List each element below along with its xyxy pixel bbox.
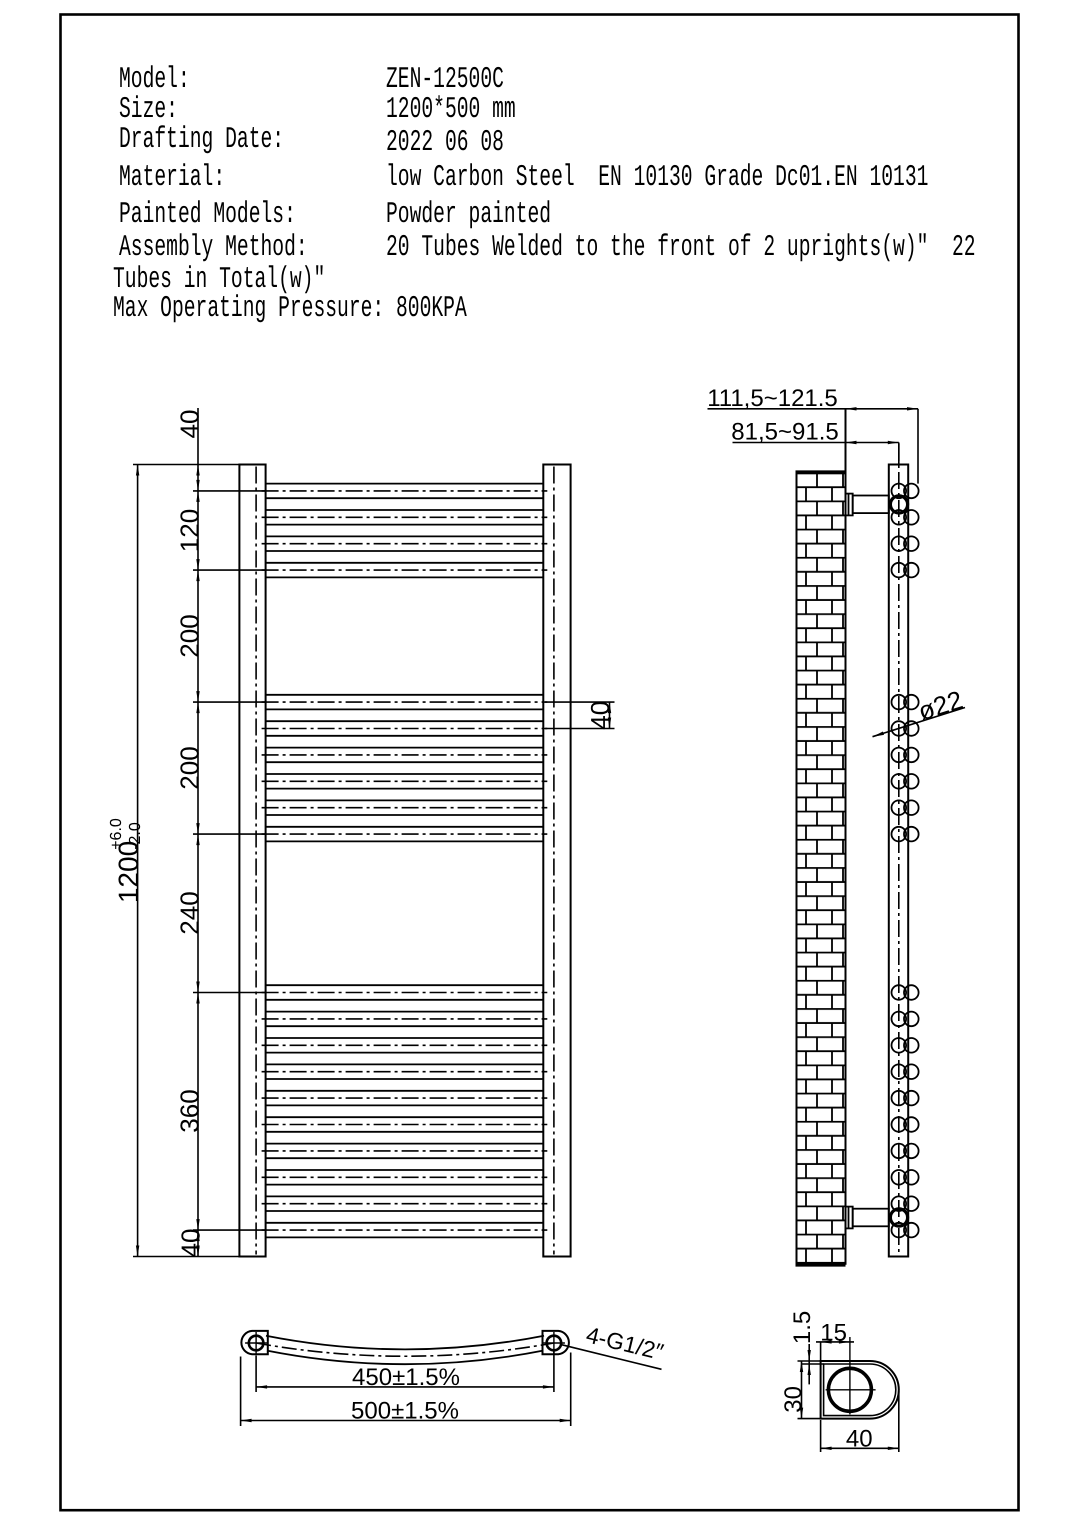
svg-text:450±1.5%: 450±1.5% xyxy=(352,1364,460,1391)
svg-text:40: 40 xyxy=(176,1229,206,1258)
svg-text:1.5: 1.5 xyxy=(789,1311,816,1344)
svg-text:15: 15 xyxy=(820,1320,847,1347)
svg-text:120: 120 xyxy=(175,509,205,552)
svg-text:40: 40 xyxy=(175,410,205,439)
svg-text:360: 360 xyxy=(175,1089,205,1132)
svg-text:Model:: Model: xyxy=(119,63,190,97)
svg-text:Material:: Material: xyxy=(119,161,225,195)
svg-text:ZEN-12500C: ZEN-12500C xyxy=(386,63,504,97)
svg-text:Painted Models:: Painted Models: xyxy=(119,198,296,232)
svg-text:-2.0: -2.0 xyxy=(127,822,144,850)
svg-text:Drafting Date:: Drafting Date: xyxy=(119,123,284,157)
svg-text:Powder painted: Powder painted xyxy=(386,198,551,232)
svg-text:2022 06 08: 2022 06 08 xyxy=(386,126,504,160)
svg-text:240: 240 xyxy=(175,891,205,934)
svg-text:200: 200 xyxy=(175,614,205,657)
svg-text:40: 40 xyxy=(846,1425,873,1452)
svg-text:1200*500 mm: 1200*500 mm xyxy=(386,93,516,127)
svg-text:Assembly Method:: Assembly Method: xyxy=(119,231,308,265)
svg-text:81,5~91.5: 81,5~91.5 xyxy=(731,419,838,446)
svg-text:+6.0: +6.0 xyxy=(108,818,125,850)
svg-text:Size:: Size: xyxy=(119,93,178,127)
svg-text:30: 30 xyxy=(780,1386,807,1413)
svg-text:40: 40 xyxy=(585,701,615,730)
svg-text:low Carbon Steel EN 10130 Gra: low Carbon Steel EN 10130 Grade Dc01.EN … xyxy=(386,161,928,195)
svg-text:20 Tubes Welded to the front o: 20 Tubes Welded to the front of 2 uprigh… xyxy=(386,231,976,265)
svg-text:Max Operating Pressure: 800KPA: Max Operating Pressure: 800KPA xyxy=(113,292,467,326)
svg-text:111,5~121.5: 111,5~121.5 xyxy=(707,385,838,412)
svg-text:500±1.5%: 500±1.5% xyxy=(351,1398,459,1425)
svg-text:200: 200 xyxy=(175,746,205,789)
